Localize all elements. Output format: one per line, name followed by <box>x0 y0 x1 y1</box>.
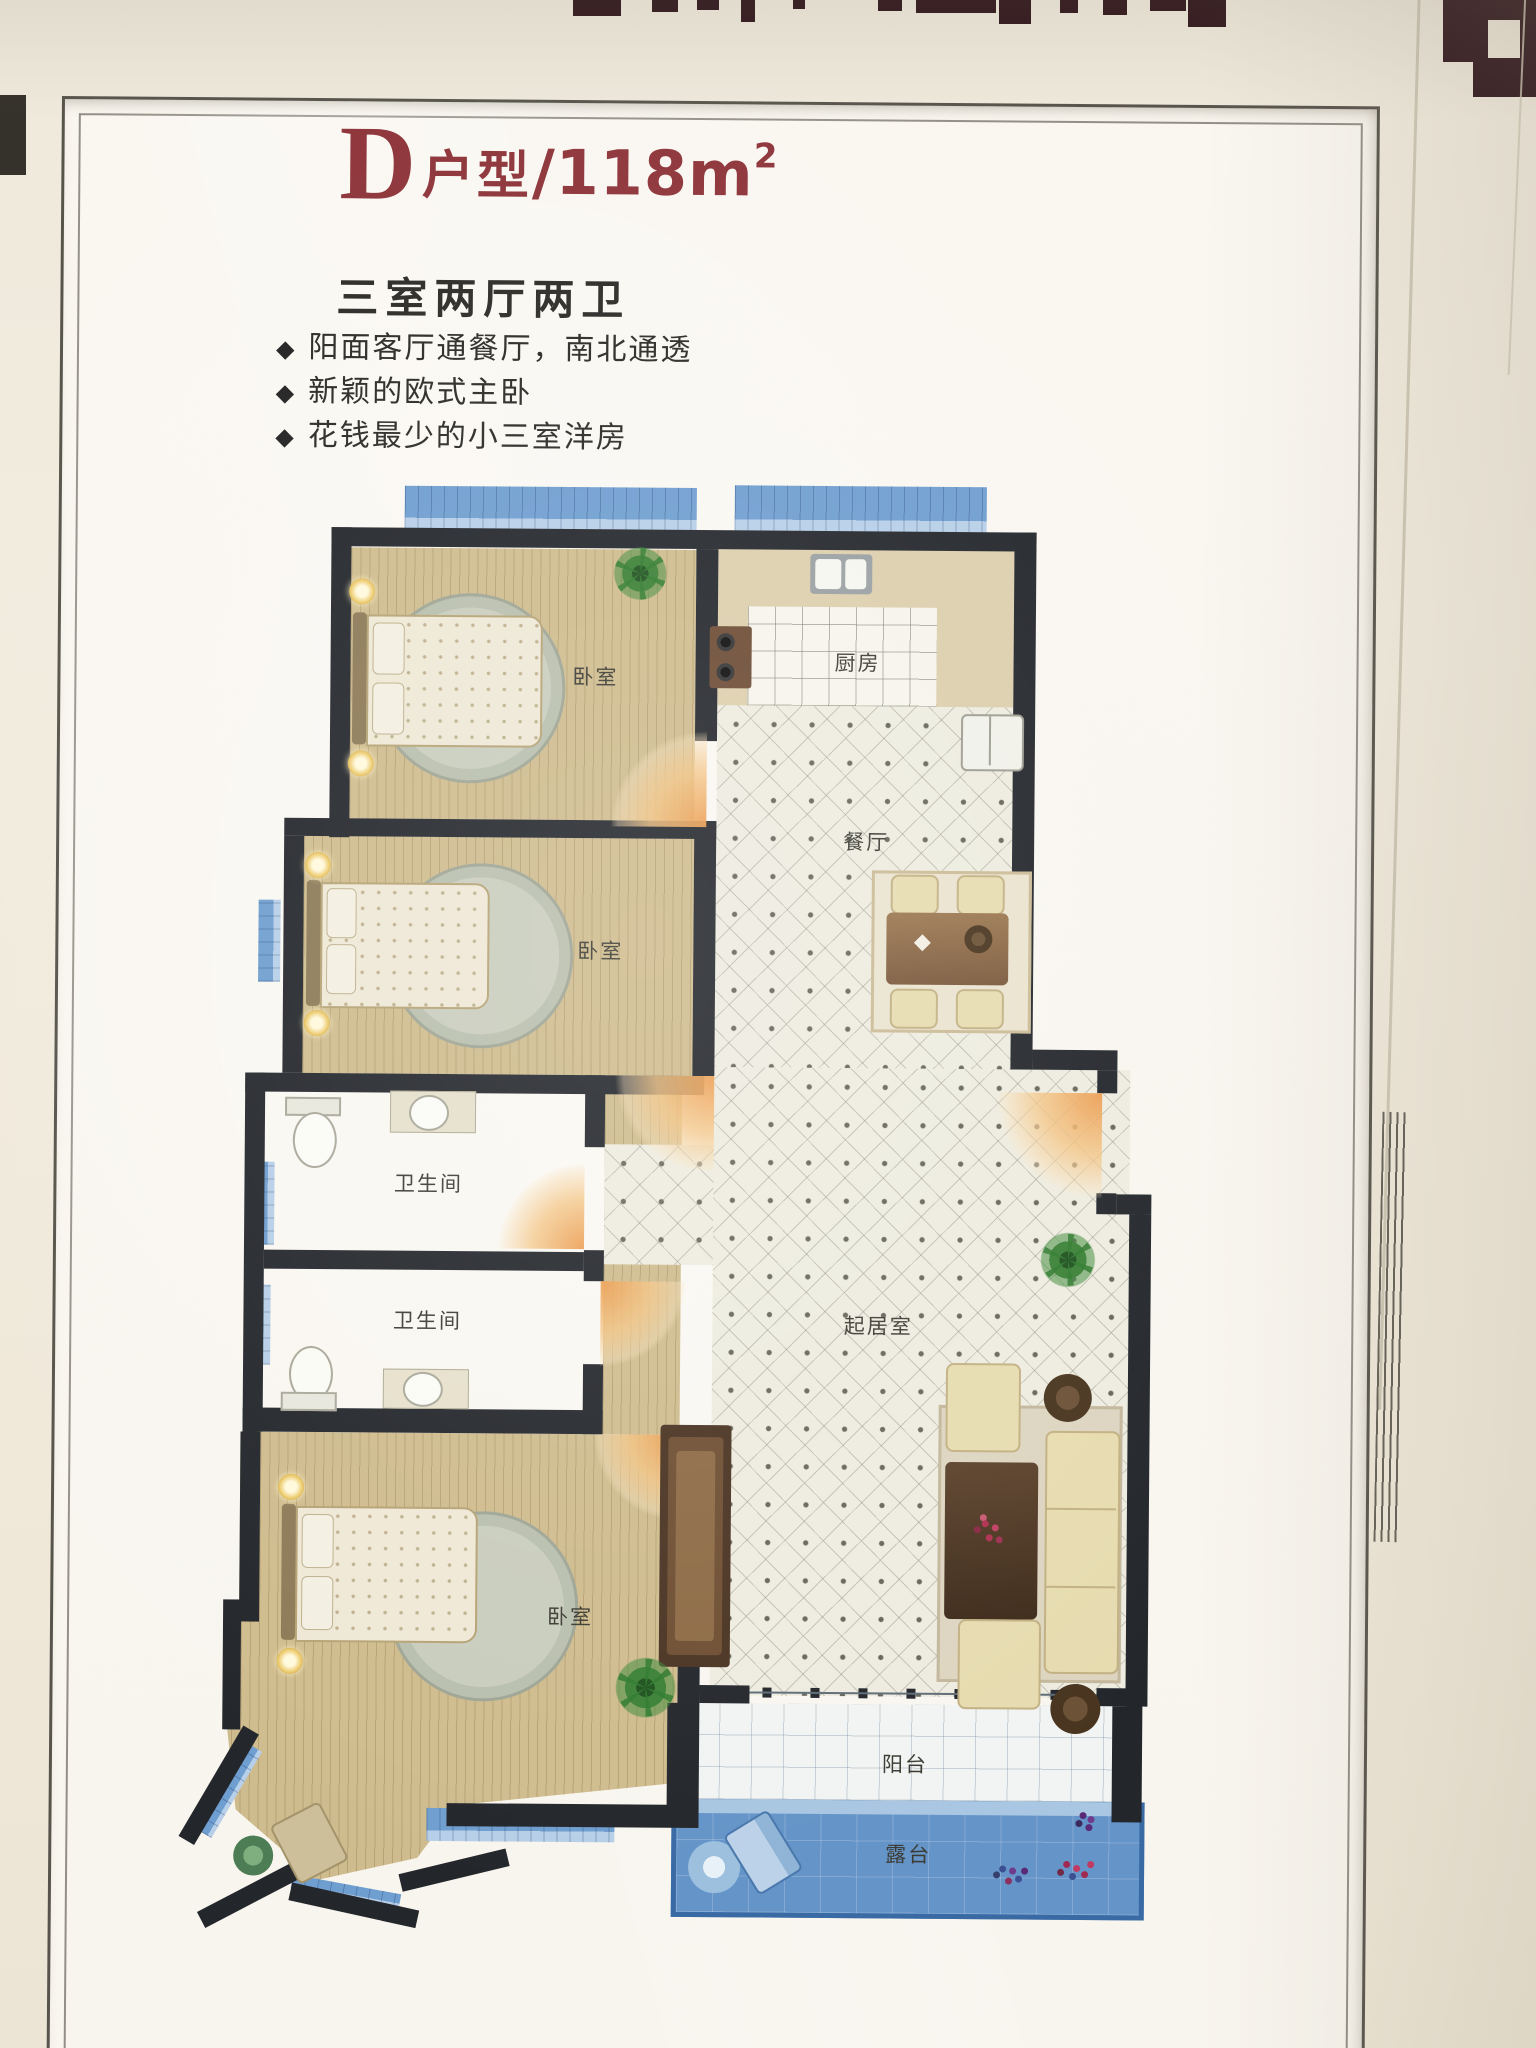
table-flowers <box>982 1520 989 1527</box>
fridge-icon <box>961 714 1024 771</box>
room-label-kitchen: 厨房 <box>834 647 880 677</box>
dining-chair <box>957 875 1005 915</box>
feature-item: ◆花钱最少的小三室洋房 <box>275 410 628 457</box>
room-label-bedroom-3: 卧室 <box>547 1601 593 1631</box>
poster-board: D户型/118m2 三室两厅两卫 ◆阳面客厅通餐厅，南北通透 ◆新颖的欧式主卧 … <box>0 0 1536 2048</box>
bedside-lamp <box>305 852 331 878</box>
wall <box>239 1431 260 1621</box>
armchair <box>945 1363 1021 1453</box>
bedside-lamp <box>304 1010 330 1036</box>
fridge-divider <box>989 716 991 765</box>
sink-icon <box>409 1095 449 1131</box>
dining-chair <box>890 989 938 1029</box>
bedside-lamp <box>349 578 375 604</box>
wall <box>1125 1214 1151 1706</box>
wall <box>666 1703 687 1821</box>
bay-wall <box>222 1599 241 1729</box>
room-label-dining: 餐厅 <box>843 826 889 856</box>
bedroom-2-window <box>258 900 281 982</box>
wall <box>584 1250 604 1281</box>
dining-chair <box>891 875 939 915</box>
feature-text: 新颖的欧式主卧 <box>308 374 532 411</box>
bedside-lamp <box>278 1474 304 1500</box>
diamond-bullet-icon: ◆ <box>276 379 297 407</box>
plant-icon <box>611 544 669 602</box>
photo-of-floorplan-poster: D户型/118m2 三室两厅两卫 ◆阳面客厅通餐厅，南北通透 ◆新颖的欧式主卧 … <box>0 0 1536 2048</box>
wall <box>446 1803 698 1828</box>
pillow <box>301 1576 333 1630</box>
wall <box>1116 1194 1151 1214</box>
bed-headboard <box>352 612 367 744</box>
wall <box>243 1407 603 1434</box>
sofa <box>1044 1431 1121 1675</box>
bedside-lamp <box>277 1648 303 1674</box>
unit-letter: D <box>339 104 416 222</box>
wall <box>585 1075 606 1147</box>
feature-item: ◆阳面客厅通餐厅，南北通透 <box>276 322 693 369</box>
plant-icon <box>612 1654 679 1721</box>
feature-item: ◆新颖的欧式主卧 <box>276 366 533 412</box>
pillow <box>326 888 356 938</box>
room-label-bedroom-1: 卧室 <box>572 661 618 691</box>
terrace-flowers <box>1079 1812 1086 1819</box>
side-table <box>1050 1684 1100 1734</box>
feature-text: 阳面客厅通餐厅，南北通透 <box>308 330 692 368</box>
media-cabinet-top <box>675 1451 715 1641</box>
terrace-flowers <box>999 1865 1006 1872</box>
pillow <box>372 682 404 734</box>
wall <box>243 1072 266 1431</box>
wall <box>282 836 304 1073</box>
plant-icon <box>1038 1230 1098 1290</box>
bedside-lamp <box>348 750 374 776</box>
serving-plate <box>964 925 992 953</box>
sink-icon <box>403 1372 443 1407</box>
bathroom-1-door-arc <box>499 1163 585 1249</box>
room-label-bathroom-2: 卫生间 <box>393 1305 462 1336</box>
wall <box>1096 1688 1146 1706</box>
burner <box>716 663 734 681</box>
pillow <box>326 944 356 994</box>
pillow <box>301 1514 333 1568</box>
dining-chair <box>956 989 1004 1029</box>
unit-type-label: 户型 <box>422 146 532 207</box>
bed-headboard <box>281 1504 296 1640</box>
toilet-icon <box>293 1112 337 1168</box>
kitchen-window <box>735 485 987 537</box>
room-label-bathroom-1: 卫生间 <box>394 1168 463 1199</box>
sink-basin <box>815 559 841 589</box>
room-label-living: 起居室 <box>844 1310 913 1341</box>
wall <box>1032 1050 1117 1071</box>
diamond-bullet-icon: ◆ <box>275 423 296 451</box>
room-label-terrace: 露台 <box>885 1839 931 1869</box>
floor-plan: 卧室 厨房 餐厅 卧室 卫生间 卫生间 起居室 卧室 阳台 露台 <box>171 479 1172 1933</box>
dining-table <box>886 913 1009 986</box>
bay-table <box>233 1835 273 1875</box>
wall <box>1111 1706 1142 1822</box>
diamond-bullet-icon: ◆ <box>276 335 297 363</box>
bed-headboard <box>306 880 321 1006</box>
room-label-balcony: 阳台 <box>882 1748 928 1778</box>
wall <box>329 527 351 837</box>
side-table <box>1044 1374 1092 1422</box>
toilet-tank <box>281 1392 337 1411</box>
wall <box>264 1250 584 1272</box>
feature-text: 花钱最少的小三室洋房 <box>308 418 628 456</box>
layout-summary: 三室两厅两卫 <box>336 264 630 327</box>
terrace-flowers <box>1063 1861 1070 1868</box>
burner <box>717 633 735 651</box>
sink-basin <box>845 559 866 589</box>
pillow <box>372 622 404 674</box>
unit-title: D户型/118m2 <box>339 110 778 219</box>
wall <box>1097 1070 1117 1093</box>
armchair <box>957 1619 1041 1710</box>
unit-area-exponent: 2 <box>754 136 778 176</box>
coffee-table <box>944 1462 1038 1620</box>
room-label-bedroom-2: 卧室 <box>577 935 623 965</box>
wall <box>699 1685 749 1703</box>
wall <box>692 821 716 1076</box>
unit-area: /118m <box>532 136 754 211</box>
